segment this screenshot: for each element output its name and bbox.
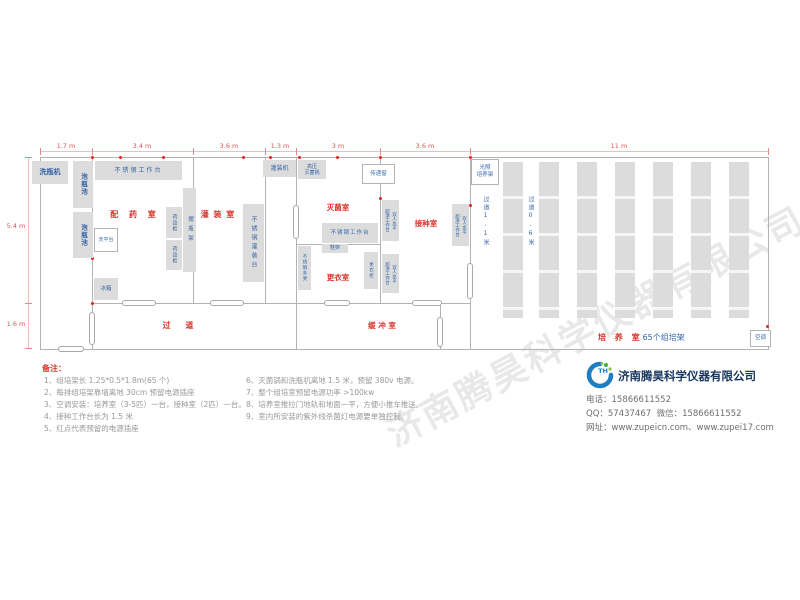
culture-rack [653,162,673,318]
room-label-culture: 培 养 室65个组培架 [598,332,685,343]
notes-title: 备注： [42,363,66,374]
note-item: 9、室内所安装的紫外线杀菌灯电源要单独控制。 [246,411,408,422]
wall-filling-strip [265,157,266,303]
dim-tick [380,148,381,155]
room-label-buffer: 缓 冲 室 [362,320,402,331]
phone-label: 电话： [586,395,612,405]
clean-bench-text: 超净工作台 [454,214,461,237]
dim-label-3-4m: 3.4 m [122,142,162,150]
power-outlet-dot [766,325,769,328]
power-outlet-dot [91,156,94,159]
ss-worktable-steril: 不锈钢工作台 [322,223,378,243]
company-qq-line: QQ：57437467 微信：15866611552 [586,407,742,419]
wall-culture-left [470,157,471,349]
room-label-changing: 更衣室 [320,272,356,283]
fridge: 冰箱 [94,278,118,300]
ss-bench: 不锈钢条凳 [301,254,308,282]
light-rack-line1: 光照 [479,165,490,171]
dim-tick [40,148,41,155]
culture-rack [615,162,635,318]
dim-label-1-7m: 1.7 m [46,142,86,150]
culture-rack-count: 65个组培架 [643,333,685,342]
door-culture-room-sliding [467,263,473,299]
dim-label-3m: 3 m [318,142,358,150]
balance-table: 天平台 [94,228,118,252]
bottle-washer: 洗瓶机 [32,161,68,184]
dim-label-11m: 11 m [599,142,639,150]
wall-left [40,157,41,350]
clean-bench-text: 超净工作台 [384,262,391,285]
culture-rack [577,162,597,318]
door-buffer-room [437,317,443,347]
note-item: 3、空调安装：培养室（3-5匹）一台，接种室（2匹）一台。 [44,399,246,410]
room-label-filling: 灌 装 室 [198,209,238,220]
web-value: www.zupeicn.com、www.zupei17.com [612,423,774,433]
wall-top [40,157,768,158]
wechat-value: 15866611552 [682,409,742,419]
phone-value: 15866611552 [612,395,672,405]
clean-bench-text: 超净工作台 [384,209,391,232]
dim-label-3-6m-b: 3.6 m [405,142,445,150]
company-phone-line: 电话：15866611552 [586,393,671,405]
power-outlet-dot [119,156,122,159]
company-web-line: 网址：www.zupeicn.com、www.zupei17.com [586,421,774,433]
wall-bottom [40,349,769,350]
medicine-cabinet-1: 药品柜 [171,214,178,232]
aisle-label-0-6m: 过道0.6米 [526,196,535,268]
power-outlet-dot [298,156,301,159]
autoclave: 高压 灭菌锅 [298,160,326,179]
door-prep-room [122,300,156,306]
dim-tick [193,148,194,155]
room-label-sterilization: 灭菌室 [320,202,356,213]
clean-bench-text: 双人水平 [461,216,468,234]
qq-value: 57437467 [608,409,651,419]
power-outlet-dot [162,156,165,159]
dim-label-1-3m: 1.3 m [260,142,300,150]
qq-label: QQ： [586,409,608,419]
note-item: 2、每排组培架靠墙离地 30cm 预留电源插座 [44,387,195,398]
dim-tick [768,148,769,155]
clean-bench-1: 双人水平 超净工作台 [382,200,399,241]
dimension-line-left [28,157,29,349]
culture-rack [729,162,749,318]
door-entrance [58,346,84,352]
door-wash-strip [89,312,95,345]
dim-label-5-4m: 5.4 m [6,222,26,230]
power-outlet-dot [379,156,382,159]
clean-bench-2: 双人水平 超净工作台 [382,254,399,293]
filling-machine: 灌装机 [263,160,296,177]
culture-rack [539,162,559,318]
culture-rack [691,162,711,318]
shoe-rack: 鞋架 [322,244,348,253]
wardrobe: 更衣柜 [368,262,375,279]
door-inoculation-room [412,300,442,306]
soak-pool-2: 泡瓶池 [80,224,87,247]
soak-pool-1: 泡瓶池 [80,173,87,196]
pass-through-window: 传递窗 [362,164,395,184]
note-item: 6、灭菌锅和洗瓶机离地 1.5 米，预留 380v 电源。 [246,375,419,386]
dim-tick [92,148,93,155]
door-changing-room [324,300,350,306]
power-outlet-dot [336,156,339,159]
autoclave-line2: 灭菌锅 [304,170,319,176]
clean-bench-3: 双人水平 超净工作台 [452,204,469,246]
bottle-rack: 摆瓶架 [186,216,193,245]
dim-tick [25,157,32,158]
power-outlet-dot [469,204,472,207]
ss-filling-table: 不锈钢灌装台 [250,216,257,270]
light-rack-line2: 培养架 [477,172,494,178]
light-culture-rack-label: 光照 培养架 [471,159,499,185]
room-label-corridor: 过 道 [156,320,206,331]
door-filling-room [210,300,244,306]
room-label-prep: 配 药 室 [110,209,160,220]
note-item: 4、接种工作台长为 1.5 米 [44,411,133,422]
web-label: 网址： [586,423,612,433]
dim-tick [25,348,32,349]
dim-tick [25,303,32,304]
company-name: 济南腾昊科学仪器有限公司 [618,368,756,384]
clean-bench-text: 双人水平 [391,265,398,283]
dim-tick [470,148,471,155]
wall-right [768,157,769,350]
wechat-label: 微信： [657,409,683,419]
note-item: 7、整个组培室预留电源功率 >100kw [246,387,374,398]
room-label-inoculation: 接种室 [408,218,444,229]
culture-rack [503,162,523,318]
dim-label-1-6m: 1.6 m [6,320,26,328]
clean-bench-text: 双人水平 [391,212,398,230]
wall-strip-steril [296,157,297,349]
medicine-cabinet-2: 药品柜 [171,246,178,264]
air-conditioner: 空调 [750,330,771,347]
note-item: 5、红点代表预留的电源插座 [44,423,139,434]
aisle-label-1-1m: 过道1.1米 [481,196,490,268]
floor-plan-page: 济南腾昊科学仪器有限公司 1.7 m 3.4 m 3.6 m 1.3 m 3 m… [0,0,800,600]
dimension-line-top [40,151,768,152]
note-item: 1、组培架长 1.25*0.5*1.8m(65 个) [44,375,169,386]
power-outlet-dot [242,156,245,159]
logo-text: TH [598,367,608,375]
ss-worktable-prep: 不锈钢工作台 [95,161,182,180]
company-logo: TH [586,361,614,393]
door-sterilization-room [293,205,299,239]
note-item: 8、培养室推拉门地轨和地面一平，方便小推车推送。 [246,399,423,410]
dim-label-3-6m: 3.6 m [209,142,249,150]
power-outlet-dot [269,156,272,159]
power-outlet-dot [91,302,94,305]
culture-room-text: 培 养 室 [598,333,643,342]
